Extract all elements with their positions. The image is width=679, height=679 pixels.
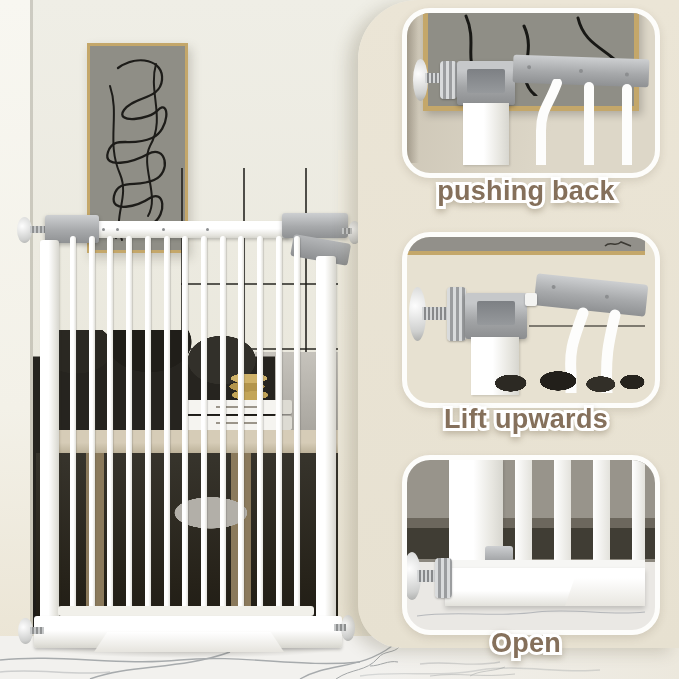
- gate-bar: [126, 236, 132, 610]
- screw-dot: [162, 228, 165, 231]
- latch-housing: [457, 61, 515, 105]
- instruction-panel-open: [402, 455, 660, 635]
- gate-bar: [201, 236, 207, 610]
- gate-bar: [220, 236, 226, 610]
- caption-lift-upwards: Lift upwards Lift upwards: [402, 404, 650, 435]
- adjuster-knob-icon: [440, 61, 457, 99]
- gate-bar: [70, 236, 76, 610]
- caption-open: Open Open: [402, 628, 650, 659]
- gate-lower-crossbar: [58, 606, 314, 616]
- gate-bar-closeup: [593, 460, 610, 572]
- caption-text: Open: [491, 628, 561, 658]
- screw-bottom-right: [334, 624, 346, 631]
- screw-dot: [102, 228, 105, 231]
- latch-inset: [467, 69, 505, 93]
- latch-inset: [477, 301, 515, 325]
- gate-post-closeup: [463, 103, 509, 165]
- caption-pushing-back: pushing back pushing back: [402, 176, 650, 207]
- gate-bar: [107, 236, 113, 610]
- screw-dot: [206, 228, 209, 231]
- gate-bar-closeup: [632, 460, 645, 572]
- gate-bars-closeup: [527, 79, 645, 165]
- screw-dot: [605, 294, 609, 298]
- screw-dot: [551, 285, 555, 289]
- adjuster-knob-icon: [435, 558, 452, 598]
- gate-bar: [276, 236, 282, 610]
- dark-blanket-closeup: [487, 371, 645, 393]
- gate-post-left: [40, 240, 59, 622]
- gate-bar: [164, 236, 170, 610]
- gate-bar-closeup: [515, 460, 532, 572]
- gate-bar: [182, 236, 188, 610]
- screw-bottom-left: [30, 627, 44, 634]
- instruction-panel-lift-upwards: [402, 232, 660, 408]
- signature-mark: [603, 238, 633, 250]
- art-frame-gold-edge: [407, 251, 645, 255]
- gate-bar-closeup: [554, 460, 571, 572]
- step-over-ramp: [94, 632, 284, 652]
- gate-post-right: [316, 256, 336, 622]
- gate-bar: [89, 236, 95, 610]
- screw-dot: [527, 65, 531, 69]
- gate-bar: [294, 236, 300, 610]
- screw-dot: [116, 228, 119, 231]
- screw-dot: [579, 69, 583, 73]
- gate-bar: [238, 236, 244, 610]
- screw-dot: [625, 73, 629, 77]
- gate-bar: [257, 236, 263, 610]
- gate-latch-right: [282, 213, 348, 238]
- adjuster-knob-icon: [447, 287, 466, 341]
- caption-text: pushing back: [437, 176, 615, 206]
- instruction-panel-pushing-back: [402, 8, 660, 178]
- step-over-ramp-closeup: [565, 578, 645, 606]
- marble-veins-closeup: [407, 606, 645, 620]
- caption-text: Lift upwards: [444, 404, 608, 434]
- gate-bar: [145, 236, 151, 610]
- product-image: pushing back pushing back Lift upwards L…: [0, 0, 679, 679]
- latch-housing: [465, 293, 527, 339]
- latch-pin: [525, 293, 537, 306]
- gate-bars: [70, 236, 304, 610]
- screw-top-right: [342, 228, 352, 234]
